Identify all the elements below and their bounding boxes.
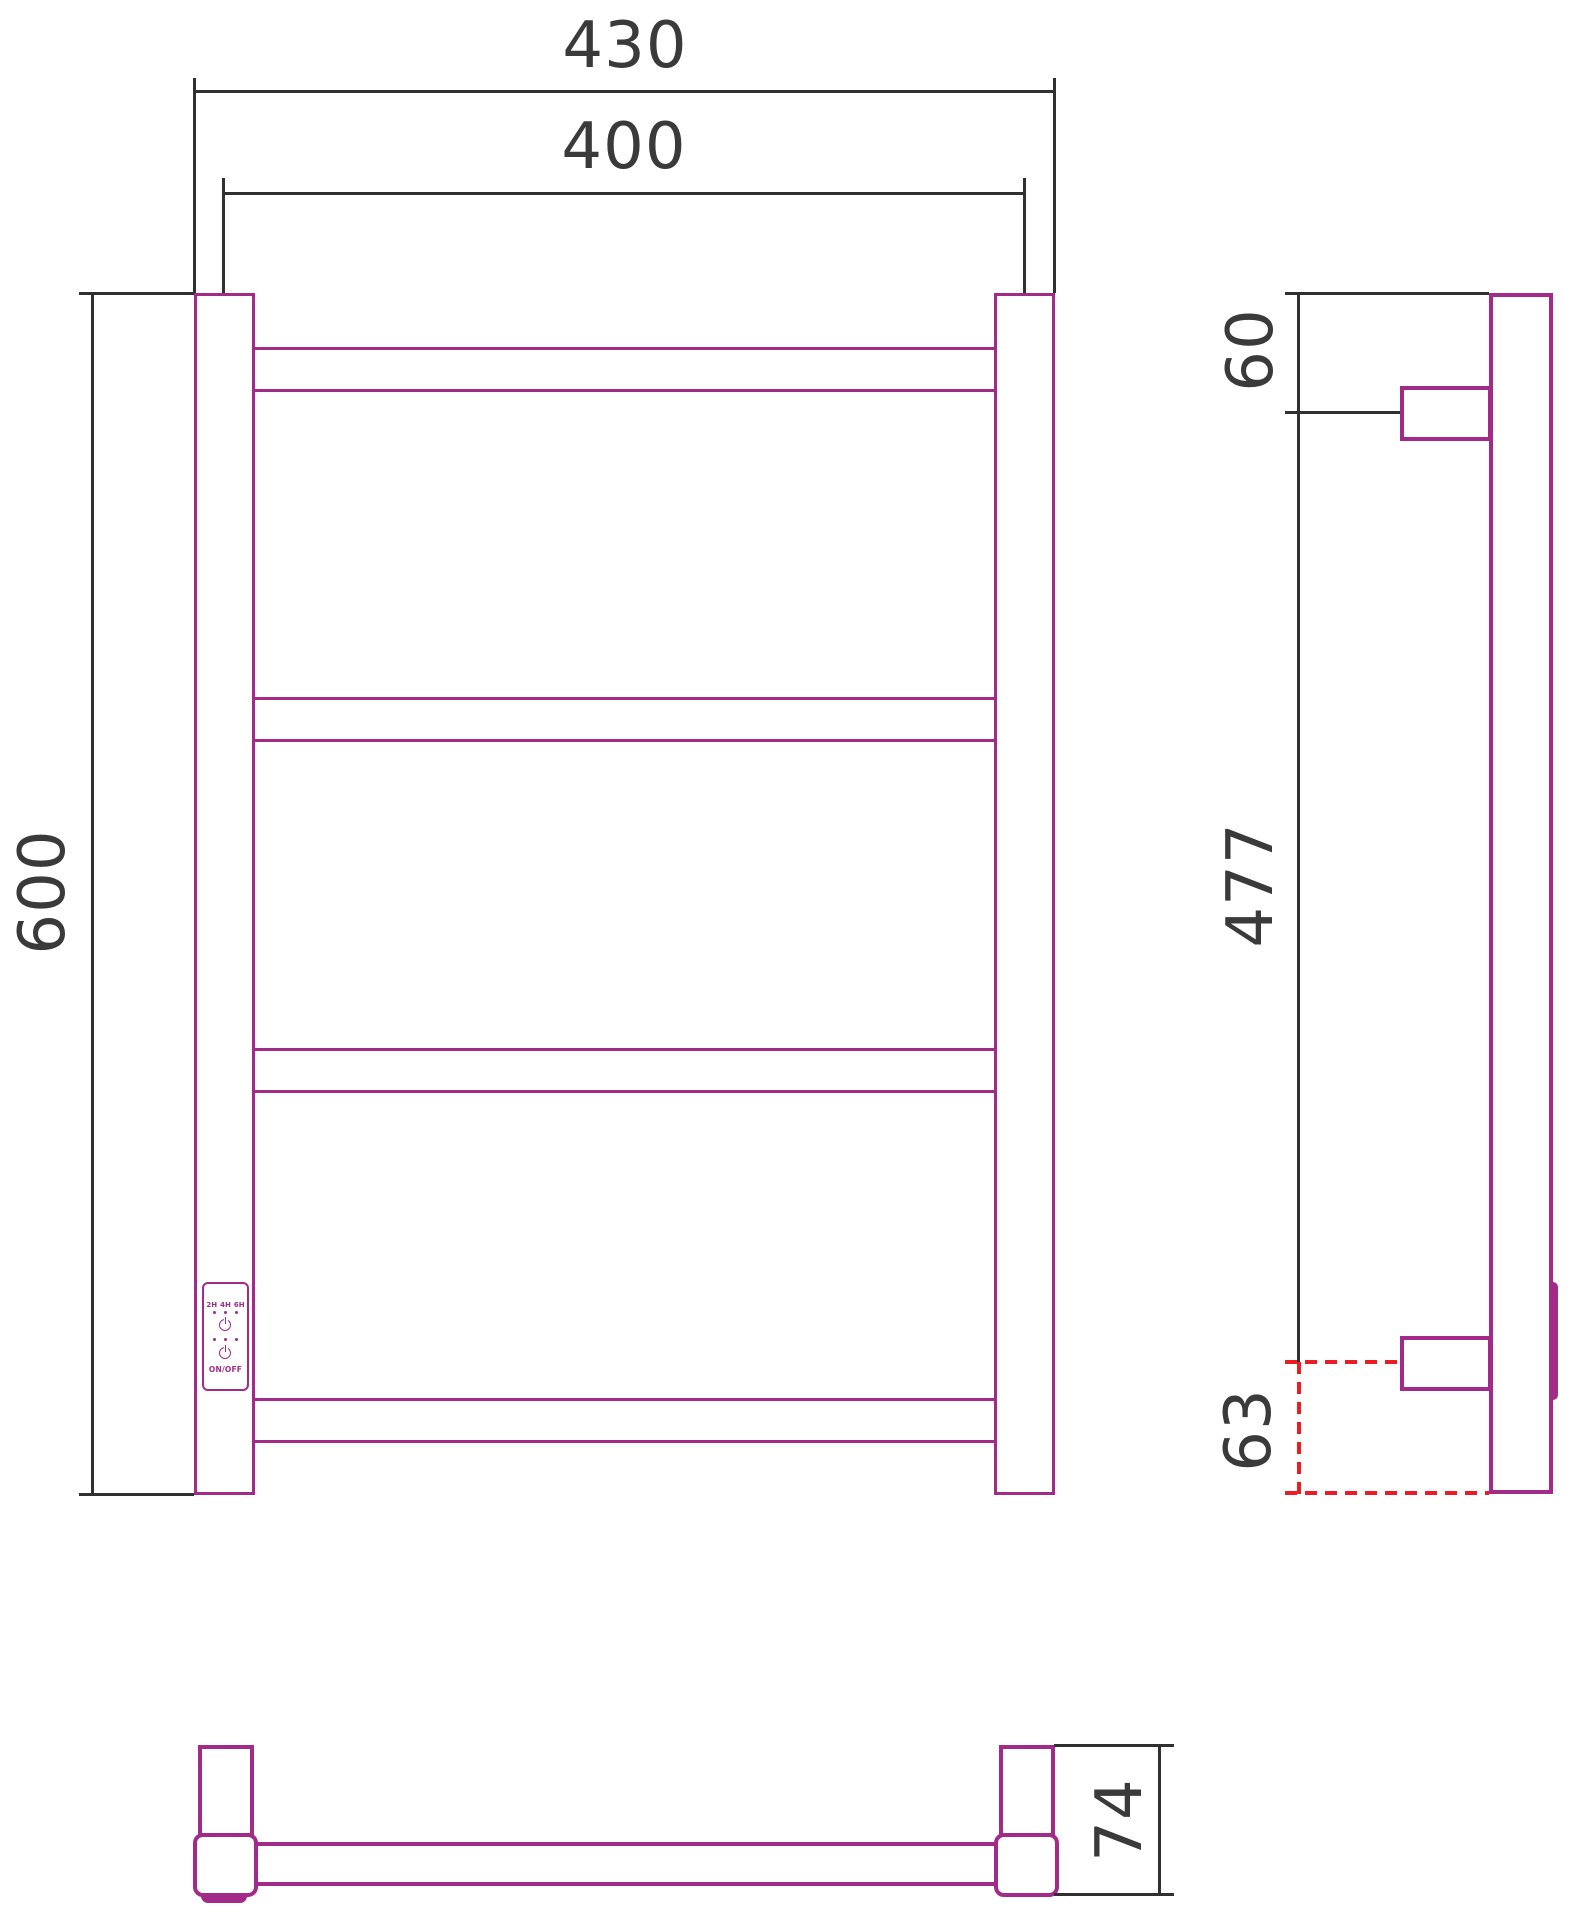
main-power-icon [219, 1346, 232, 1359]
led-dot-icon [213, 1311, 216, 1314]
dim-line-600 [91, 294, 94, 1495]
side-dim-line [1297, 293, 1300, 1362]
dim-line-430 [194, 90, 1056, 93]
power-stem [225, 1317, 227, 1324]
timer-power-icon [219, 1318, 232, 1331]
timer-label-2h: 2H [206, 1301, 217, 1309]
bottom-bracket-stem-right [999, 1745, 1055, 1837]
drawing-canvas: 430 400 600 2H 4H 6H [0, 0, 1576, 1920]
dim-ext-430-right [1053, 78, 1056, 293]
dim-tick-600-bottom [79, 1493, 194, 1496]
hidden-line-top [1285, 1360, 1399, 1364]
hidden-line-left [1297, 1362, 1301, 1495]
led-dot-icon [224, 1338, 227, 1341]
timer-labels: 2H 4H 6H [206, 1301, 244, 1309]
bottom-post-section-right [994, 1833, 1059, 1897]
rung-1 [254, 347, 996, 392]
led-dot-icon [224, 1311, 227, 1314]
dim-line-400 [222, 192, 1026, 195]
dim-ext-400-left [222, 178, 225, 293]
control-panel: 2H 4H 6H ON/OFF [202, 1282, 249, 1391]
rung-2 [254, 697, 996, 742]
side-bracket-top [1400, 386, 1492, 441]
timer-led-row [213, 1311, 238, 1314]
dim-label-height: 600 [10, 792, 76, 992]
timer-label-4h: 4H [220, 1301, 231, 1309]
rung-4 [254, 1398, 996, 1443]
dim-ext-400-right [1023, 178, 1026, 293]
dim-label-outer-width: 430 [525, 13, 725, 79]
dim-label-axis-width: 400 [524, 114, 724, 180]
side-bracket-bottom [1400, 1336, 1492, 1391]
led-dot-icon [235, 1338, 238, 1341]
side-rail-bar [1489, 293, 1553, 1494]
control-panel-side-profile [1549, 1282, 1558, 1400]
led-dot-icon [235, 1311, 238, 1314]
dim-ext-430-left [193, 78, 196, 293]
bottom-bracket-stem-left [198, 1745, 254, 1837]
hidden-line-bottom [1285, 1491, 1489, 1495]
control-panel-bottom-profile [201, 1894, 247, 1903]
bottom-post-section-left [193, 1833, 258, 1897]
side-tick-top [1285, 292, 1489, 295]
dim-line-74 [1158, 1744, 1161, 1896]
dim-label-bottom-offset: 63 [1216, 1350, 1282, 1510]
led-dot-icon [213, 1338, 216, 1341]
dim-label-depth: 74 [1087, 1740, 1153, 1900]
bottom-tube [256, 1842, 996, 1886]
onoff-label: ON/OFF [209, 1365, 242, 1374]
dim-tick-600-top [79, 292, 194, 295]
side-tick-bracket-axis [1285, 411, 1400, 414]
rung-3 [254, 1048, 996, 1093]
timer-label-6h: 6H [234, 1301, 245, 1309]
dim-label-bracket-span: 477 [1218, 805, 1284, 965]
power-stem [225, 1345, 227, 1352]
dim-label-top-offset: 60 [1218, 270, 1284, 430]
post-right [994, 293, 1055, 1495]
heat-led-row [213, 1338, 238, 1341]
